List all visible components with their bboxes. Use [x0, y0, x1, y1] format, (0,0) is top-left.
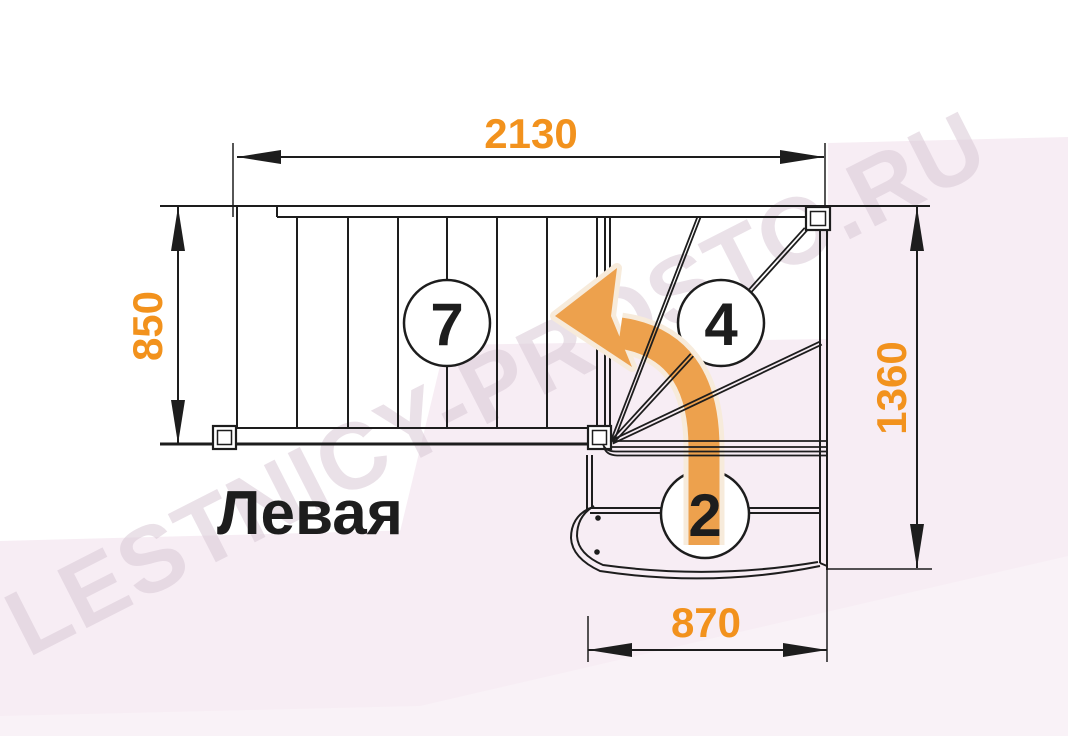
dim-arrow-down: [171, 400, 185, 444]
variant-title: Левая: [217, 479, 403, 548]
newel-post-left-inner: [218, 431, 232, 445]
dowel-dot: [595, 515, 601, 521]
upper-flight-count: 7: [430, 291, 463, 358]
dimension-top-value: 2130: [484, 110, 577, 157]
newel-post-top-right-inner: [811, 212, 826, 226]
lower-flight-count: 2: [688, 482, 721, 549]
dowel-dot: [594, 549, 600, 555]
dim-arrow-left: [237, 150, 281, 164]
dimension-bottom-value: 870: [671, 599, 741, 646]
winder-count: 4: [704, 291, 738, 358]
staircase-plan-svg: LESTNICY-PROSTO.RU: [0, 0, 1068, 736]
staircase-plan-figure: LESTNICY-PROSTO.RU: [0, 0, 1068, 736]
newel-post-center-inner: [593, 431, 607, 445]
dimension-left-value: 850: [124, 291, 171, 361]
dimension-right-value: 1360: [868, 341, 915, 434]
dim-arrow-up: [171, 207, 185, 251]
dimension-left: 850: [124, 207, 185, 444]
